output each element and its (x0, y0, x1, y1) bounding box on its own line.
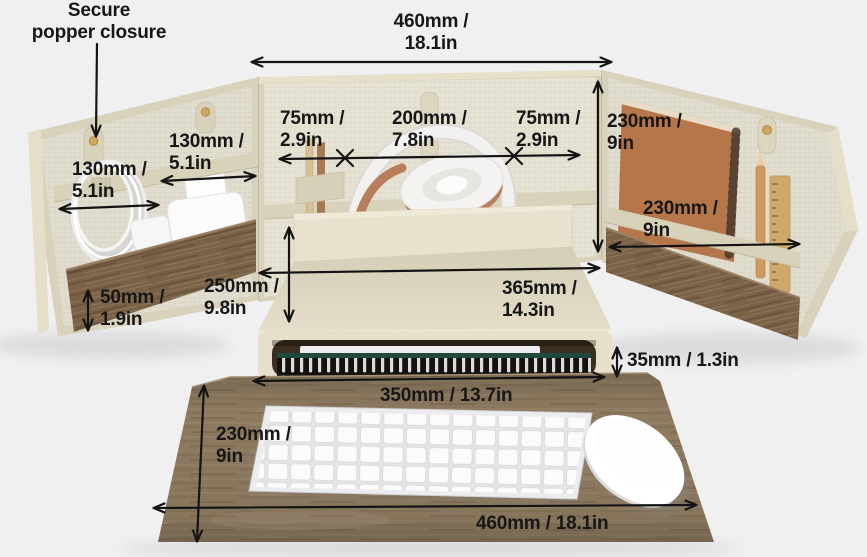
dim-shelf-right: 75mm / 2.9in (516, 108, 580, 152)
dim-left-strap-right: 130mm / 5.1in (169, 131, 244, 175)
wooden-ruler (770, 176, 790, 292)
dim-slot-height: 35mm / 1.3in (627, 350, 739, 372)
dim-left-strap-left: 130mm / 5.1in (72, 159, 147, 203)
product-dimension-diagram: Secure popper closure 460mm / 18.1in 130… (0, 0, 867, 557)
dim-mat-depth: 230mm / 9in (216, 424, 291, 468)
dim-mat-width: 460mm / 18.1in (476, 513, 608, 535)
dim-shelf-left: 75mm / 2.9in (280, 108, 344, 152)
callout-arrow (96, 44, 97, 136)
notebooks-under-stand (272, 340, 596, 376)
dim-stand-depth: 250mm / 9.8in (204, 276, 279, 320)
wireless-keyboard (249, 406, 592, 503)
dim-right-panel-height: 230mm / 9in (607, 111, 682, 155)
dim-shelf-center: 200mm / 7.8in (392, 108, 467, 152)
dim-stand-width: 365mm / 14.3in (502, 278, 577, 322)
dim-left-pocket-height: 50mm / 1.9in (100, 287, 164, 331)
callout-popper-closure: Secure popper closure (24, 0, 174, 44)
popper-strap (758, 117, 776, 154)
dim-organizer-width: 460mm / 18.1in (358, 11, 504, 55)
dim-slot-width: 350mm / 13.7in (380, 385, 512, 407)
scene-art (0, 0, 867, 557)
dim-right-panel-width: 230mm / 9in (643, 198, 718, 242)
